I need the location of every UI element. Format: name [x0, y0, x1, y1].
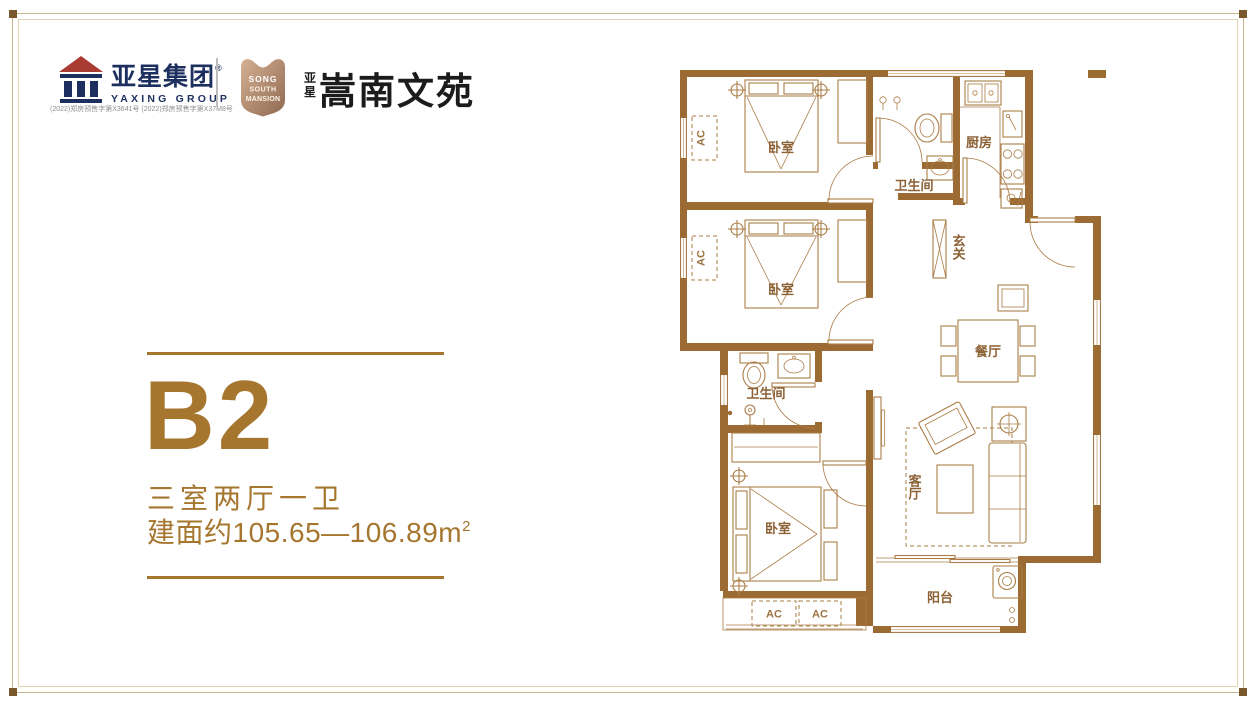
chair-icon: [1020, 356, 1035, 376]
bedroom3-door: [823, 461, 866, 506]
entry-hall: 玄关: [933, 220, 966, 278]
svg-text:AC: AC: [812, 609, 828, 621]
walls: [680, 70, 1106, 633]
column-marker: [730, 467, 748, 485]
cutting-board-icon: [1003, 111, 1022, 137]
frame-corner: [9, 688, 17, 696]
ac-unit-icon: AC: [799, 601, 841, 626]
kitchen: 厨房: [960, 81, 1024, 208]
nightstand-icon: [824, 542, 837, 580]
bathroom2-label: 卫生间: [746, 386, 785, 401]
entry-door: [1030, 218, 1075, 267]
floor-drain-icons: [1010, 608, 1015, 623]
divider-rule-top: [147, 352, 444, 355]
balcony-sliding-door: [876, 556, 1018, 563]
coffee-table-icon: [937, 465, 973, 513]
wardrobe-icon: [732, 433, 820, 462]
unit-type-title: B2: [144, 366, 275, 464]
building-icon: [58, 55, 104, 105]
kitchen-label: 厨房: [966, 135, 992, 150]
bathroom1-label: 卫生间: [894, 178, 933, 193]
company-name-cn: 亚星集团®: [111, 55, 230, 90]
balcony-label: 阳台: [927, 590, 953, 605]
area-value: 建面约105.65—106.89m: [147, 517, 462, 548]
bedroom-2: 卧室 AC: [692, 220, 867, 308]
bedroom3-label: 卧室: [765, 521, 791, 536]
window-living-right: [1093, 435, 1101, 505]
dining-label: 餐厅: [974, 344, 1001, 359]
nightstand-icon: [824, 490, 837, 528]
song-south-mansion-badge: SONG SOUTH MANSION: [237, 55, 289, 117]
bedroom1-door: [828, 156, 873, 203]
column-marker: [728, 220, 746, 238]
ac-platform: AC AC: [723, 598, 866, 630]
window-balcony-bottom: [891, 626, 1000, 633]
chair-icon: [941, 326, 956, 346]
stove-icon: [1001, 144, 1024, 184]
presale-permit-line: (2022)郑房预售字第X3641号 (2022)郑房预售字第X37M8号: [50, 104, 233, 114]
ac-unit-icon: AC: [692, 236, 717, 280]
bathroom-2: 卫生间: [728, 353, 810, 425]
svg-text:AC: AC: [696, 250, 708, 266]
svg-text:AC: AC: [766, 609, 782, 621]
bathroom-1: 卫生间: [880, 97, 953, 193]
developer-logo: 亚星集团® YAXING GROUP: [58, 55, 230, 105]
partition-screen-icon: [933, 220, 946, 278]
badge-line1: SONG: [248, 74, 277, 84]
window-left-1: [680, 118, 687, 158]
balcony: 阳台: [927, 566, 1022, 623]
washer-icon: [993, 566, 1022, 598]
bedroom-1: 卧室 AC: [692, 80, 867, 172]
windows: [680, 70, 1101, 633]
divider-rule-bottom: [147, 576, 444, 579]
area-superscript: 2: [462, 518, 471, 535]
kitchen-sink-icon: [965, 81, 1001, 105]
tv-cabinet-icon: [874, 397, 885, 459]
window-dining-right: [1093, 300, 1101, 345]
valve-icons: [880, 97, 900, 110]
hall-label: 玄关: [951, 233, 966, 261]
project-prefix-bottom: 星: [303, 86, 317, 100]
shower-icon: [728, 405, 764, 425]
chair-icon: [941, 356, 956, 376]
chair-icon: [1020, 326, 1035, 346]
project-prefix: 亚 星: [303, 72, 317, 99]
bedroom-3: 卧室: [730, 433, 837, 595]
floor-ac-icon: [992, 407, 1026, 441]
dining-room: 餐厅: [941, 285, 1035, 382]
wardrobe-icon: [838, 80, 867, 143]
bedroom2-door: [828, 297, 873, 344]
frame-corner: [1239, 688, 1247, 696]
column-marker: [728, 81, 746, 99]
sofa-icon: [989, 443, 1026, 543]
project-prefix-top: 亚: [303, 72, 317, 86]
bedroom2-label: 卧室: [768, 282, 794, 297]
window-left-3: [720, 375, 728, 405]
column-marker: [812, 220, 830, 238]
toilet-icon: [915, 114, 952, 142]
bed-icon: [745, 80, 818, 172]
svg-text:AC: AC: [696, 130, 708, 146]
sink-icon: [778, 354, 810, 378]
header-divider: [216, 58, 218, 106]
armchair-icon: [918, 401, 976, 454]
window-left-2: [680, 238, 687, 278]
project-name: 嵩南文苑: [319, 61, 475, 115]
floorplan-svg: 卧室 AC 卧室 AC: [660, 50, 1120, 650]
area-text: 建面约105.65—106.89m2: [147, 511, 471, 551]
bedroom1-label: 卧室: [768, 140, 794, 155]
window-top: [888, 70, 1005, 77]
ac-unit-icon: AC: [752, 601, 796, 626]
badge-line2: SOUTH: [250, 87, 277, 94]
company-name-text: 亚星集团: [111, 63, 215, 91]
kitchen-door: [963, 158, 1010, 203]
toilet-icon: [740, 353, 768, 388]
badge-line3: MANSION: [246, 96, 280, 103]
floorplan-flyer: 亚星集团® YAXING GROUP (2022)郑房预售字第X3641号 (2…: [0, 0, 1256, 706]
ac-unit-icon: AC: [692, 116, 717, 160]
wardrobe-icon: [838, 220, 867, 282]
living-room: 客厅: [874, 397, 1026, 546]
frame-corner: [9, 10, 17, 18]
living-label: 客厅: [907, 473, 922, 501]
frame-corner: [1239, 10, 1247, 18]
